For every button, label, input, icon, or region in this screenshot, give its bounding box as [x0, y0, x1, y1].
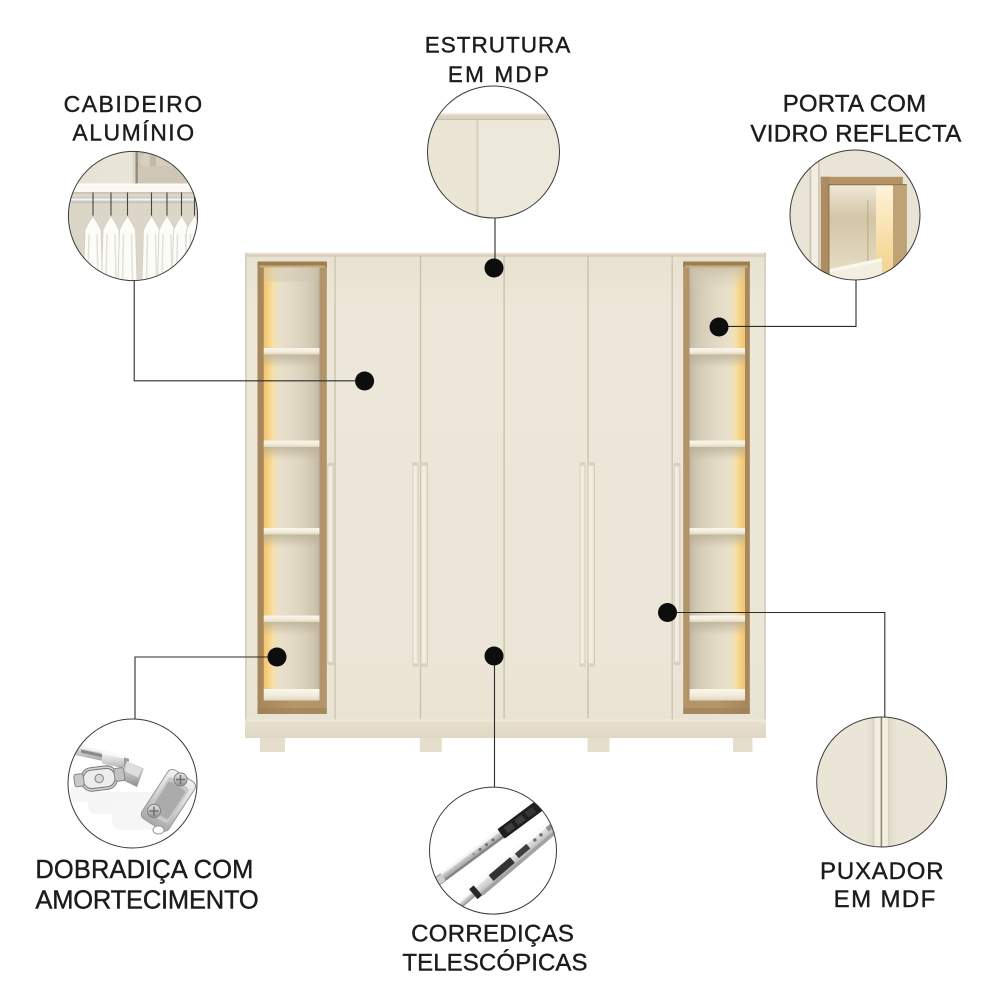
svg-text:EM MDF: EM MDF [834, 886, 937, 913]
svg-text:PORTA COM: PORTA COM [783, 91, 927, 118]
svg-text:PUXADOR: PUXADOR [820, 858, 944, 885]
svg-text:TELESCÓPICAS: TELESCÓPICAS [402, 950, 587, 977]
svg-text:EM MDP: EM MDP [448, 62, 551, 87]
svg-text:VIDRO REFLECTA: VIDRO REFLECTA [750, 121, 961, 148]
svg-text:DOBRADIÇA COM: DOBRADIÇA COM [35, 856, 253, 884]
svg-text:CABIDEIRO: CABIDEIRO [64, 91, 204, 117]
svg-text:ESTRUTURA: ESTRUTURA [425, 33, 572, 58]
svg-text:AMORTECIMENTO: AMORTECIMENTO [35, 887, 258, 915]
svg-text:CORREDIÇAS: CORREDIÇAS [411, 920, 574, 947]
svg-text:ALUMÍNIO: ALUMÍNIO [72, 119, 195, 145]
